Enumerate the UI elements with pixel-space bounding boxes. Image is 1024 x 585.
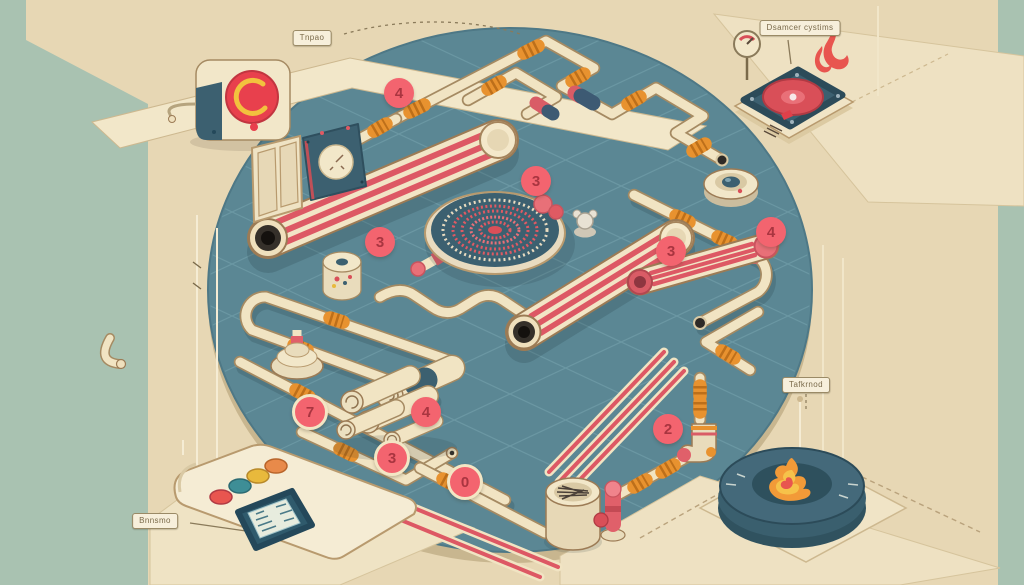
number-badge-6: 7 <box>292 394 328 430</box>
label-bottom-left: Bnnsmo <box>132 513 178 529</box>
number-badge-8: 3 <box>374 440 410 476</box>
label-top-left: Tnpao <box>293 30 332 46</box>
sensor-puck <box>704 169 758 207</box>
label-right-side: Tafkrnod <box>782 377 830 393</box>
number-badge-4: 3 <box>656 236 686 266</box>
grill-canister <box>544 478 602 553</box>
isometric-piping-illustration: 4 3 3 3 4 7 4 3 0 2 Tnpao Dsamcer cystim… <box>0 0 1024 585</box>
wall-dial-panel <box>303 124 366 200</box>
label-top-right: Dsamcer cystims <box>760 20 841 36</box>
number-badge-2: 3 <box>521 166 551 196</box>
number-badge-1: 4 <box>384 78 414 108</box>
number-badge-7: 4 <box>411 397 441 427</box>
number-badge-9: 0 <box>447 464 483 500</box>
number-badge-5: 4 <box>756 217 786 247</box>
window-frame <box>252 136 302 222</box>
number-badge-10: 2 <box>653 414 683 444</box>
number-badge-3: 3 <box>365 227 395 257</box>
tape-canister <box>323 252 361 300</box>
illustration-canvas <box>0 0 1024 585</box>
